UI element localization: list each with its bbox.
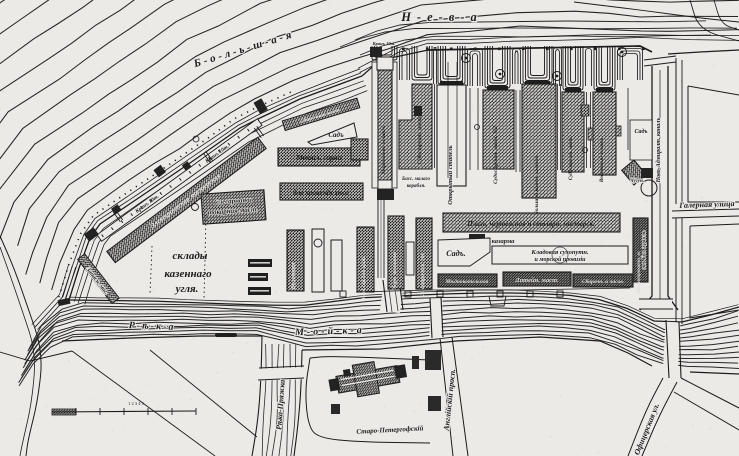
svg-text:казарма: казарма [492,238,516,245]
svg-text:угля.: угля. [174,283,199,295]
svg-text:Садъ.: Садъ. [446,249,465,258]
svg-text:Электрическ. ст.: Электрическ. ст. [420,252,426,295]
svg-text:для храненiя лѣса: для храненiя лѣса [293,189,349,197]
svg-text:и морской провизiи: и морской провизiи [535,256,587,263]
svg-text:Булочная: Булочная [290,262,297,290]
svg-text:Н-е-в-а: Н-е-в-а [400,10,483,24]
svg-text:Садъ: Садъ [328,131,344,139]
svg-text:Садъ: Садъ [634,128,647,135]
svg-text:корабля.: корабля. [407,184,426,189]
svg-text:1 2 3 4 5: 1 2 3 4 5 [128,401,145,406]
svg-text:Плазъ, чертежная и столярн. ма: Плазъ, чертежная и столярн. мастерск. [466,220,595,228]
svg-text:Басс. малаго: Басс. малаго [401,177,430,182]
svg-text:склады: склады [173,250,208,262]
svg-text:Метал. сараи: Метал. сараи [295,153,342,162]
svg-text:Ново-Адмиралт. каналъ: Ново-Адмиралт. каналъ [655,118,662,184]
svg-text:Литейн. маст.: Литейн. маст. [514,277,559,284]
svg-text:Мортоновъ эллингъ: Мортоновъ эллингъ [381,126,387,176]
svg-text:отъ Бол. и разст.: отъ Бол. и разст. [642,230,647,269]
svg-text:Мет.сар.для хран.: Мет.сар.для хран. [360,256,367,302]
svg-text:Мѣднокотельная: Мѣднокотельная [445,278,489,285]
svg-text:Большой камен. эллингъ: Большой камен. эллингъ [533,155,540,216]
svg-text:Чугун.: Чугун. [630,179,644,184]
svg-text:казеннаго: казеннаго [164,268,212,280]
svg-text:Восточный эллингъ: Восточный эллингъ [599,138,605,184]
svg-text:Р-ѣ-к-а: Р-ѣ-к-а [128,320,175,333]
svg-text:Судостроит. маст.: Судостроит. маст. [569,136,574,180]
svg-text:Судостроит. маст.: Судостроит. маст. [416,116,423,165]
svg-text:Кладовая сухопутн.: Кладовая сухопутн. [530,249,589,256]
svg-text:Судостроит. маст. №2: Судостроит. маст. №2 [492,126,499,184]
svg-text:Кранъ 10т.: Кранъ 10т. [372,41,396,46]
svg-text:Сборочн. и часов.: Сборочн. и часов. [582,278,624,285]
svg-text:Сборн. комнаты: Сборн. комнаты [391,252,398,293]
